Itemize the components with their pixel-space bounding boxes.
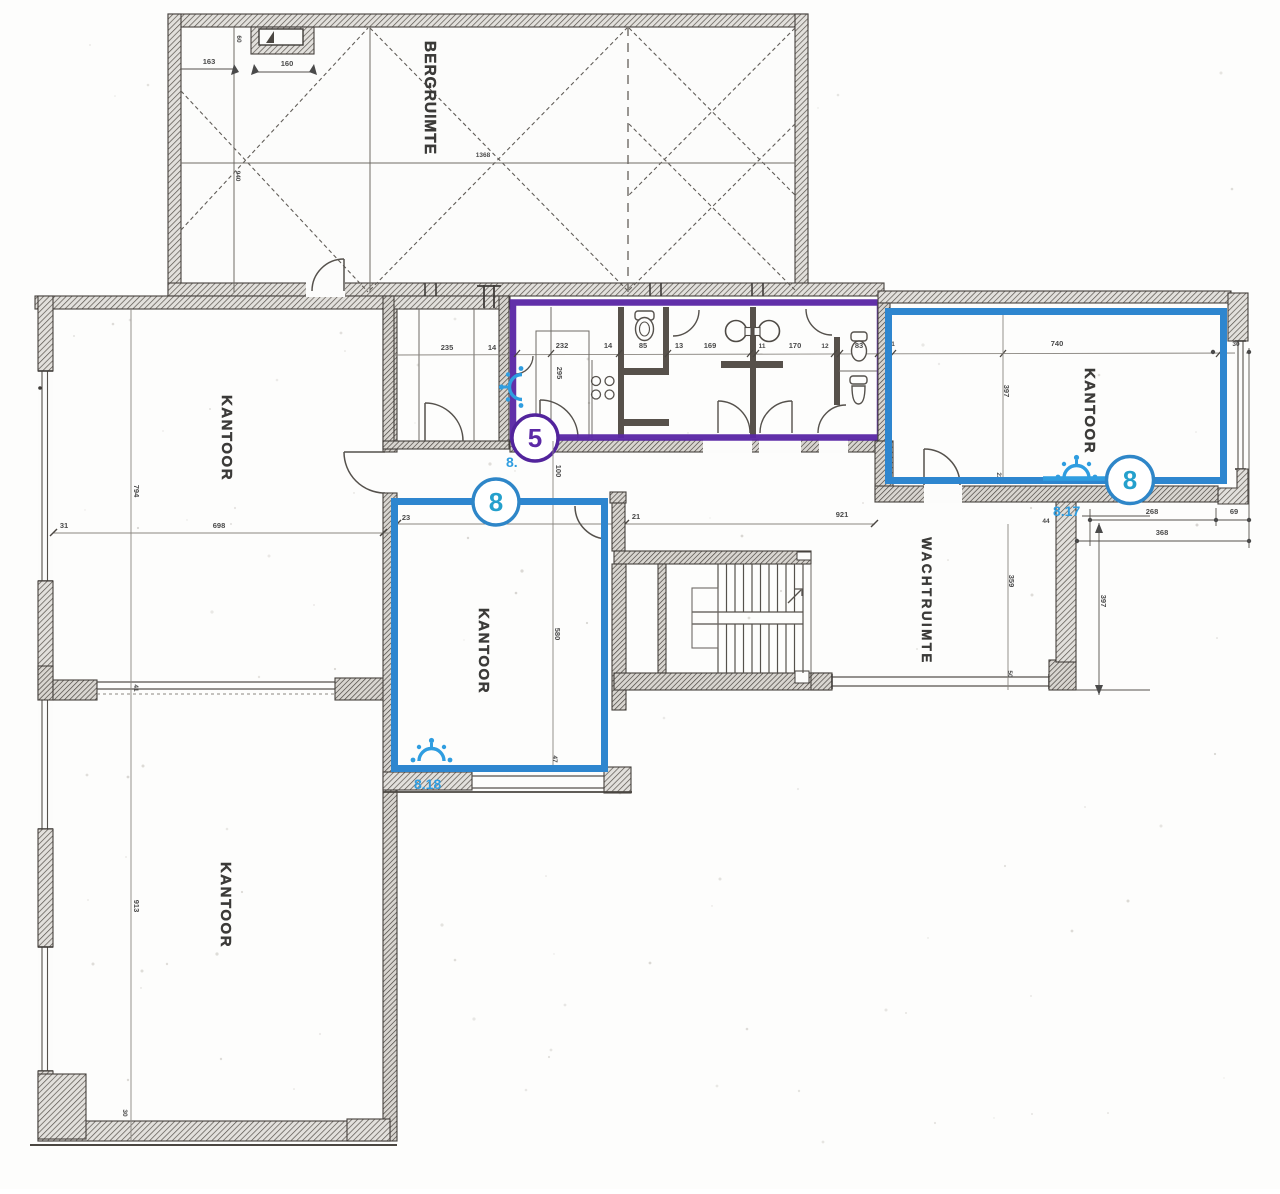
svg-text:1368: 1368 — [476, 152, 491, 159]
svg-text:8: 8 — [1123, 465, 1137, 495]
svg-text:13: 13 — [675, 341, 683, 350]
svg-text:913: 913 — [132, 900, 141, 913]
svg-text:359: 359 — [1007, 575, 1016, 588]
svg-text:268: 268 — [1146, 507, 1159, 516]
svg-text:WACHTRUIMTE: WACHTRUIMTE — [919, 537, 934, 665]
svg-text:580: 580 — [553, 628, 562, 641]
svg-text:69: 69 — [1230, 507, 1238, 516]
svg-text:31: 31 — [60, 521, 68, 530]
svg-text:KANTOOR: KANTOOR — [475, 608, 492, 694]
svg-text:940: 940 — [234, 171, 241, 182]
svg-text:295: 295 — [555, 367, 564, 380]
svg-text:30: 30 — [1232, 341, 1240, 348]
svg-text:698: 698 — [213, 521, 226, 530]
svg-text:100: 100 — [554, 465, 563, 478]
svg-text:397: 397 — [1099, 595, 1108, 608]
svg-text:794: 794 — [132, 485, 141, 498]
svg-text:11: 11 — [759, 343, 766, 350]
svg-text:BERGRUIMTE: BERGRUIMTE — [421, 41, 438, 155]
svg-text:47: 47 — [551, 755, 558, 763]
svg-text:8: 8 — [489, 487, 503, 517]
svg-text:232: 232 — [556, 341, 569, 350]
svg-text:14: 14 — [604, 341, 613, 350]
svg-text:KANTOOR: KANTOOR — [217, 862, 234, 948]
svg-text:8.18: 8.18 — [414, 776, 441, 792]
svg-text:8.17: 8.17 — [1053, 503, 1080, 519]
svg-text:KANTOOR: KANTOOR — [1081, 368, 1098, 454]
svg-text:83: 83 — [855, 341, 863, 350]
svg-text:160: 160 — [281, 59, 294, 68]
svg-text:740: 740 — [1051, 339, 1064, 348]
svg-text:85: 85 — [639, 341, 647, 350]
svg-text:921: 921 — [836, 510, 849, 519]
svg-text:23: 23 — [402, 513, 410, 522]
svg-text:KANTOOR: KANTOOR — [218, 395, 235, 481]
svg-text:368: 368 — [1156, 528, 1169, 537]
svg-text:30: 30 — [121, 1109, 128, 1117]
svg-text:60: 60 — [235, 35, 242, 43]
svg-text:41: 41 — [132, 684, 139, 692]
svg-text:44: 44 — [1042, 518, 1050, 525]
svg-text:169: 169 — [704, 341, 717, 350]
svg-text:21: 21 — [632, 512, 640, 521]
svg-text:14: 14 — [488, 343, 497, 352]
svg-text:170: 170 — [789, 341, 802, 350]
svg-text:5: 5 — [528, 423, 542, 453]
svg-text:8.: 8. — [506, 454, 518, 470]
svg-text:235: 235 — [441, 343, 454, 352]
svg-text:163: 163 — [203, 57, 216, 66]
svg-text:50: 50 — [1006, 670, 1013, 678]
svg-text:12: 12 — [821, 343, 829, 350]
